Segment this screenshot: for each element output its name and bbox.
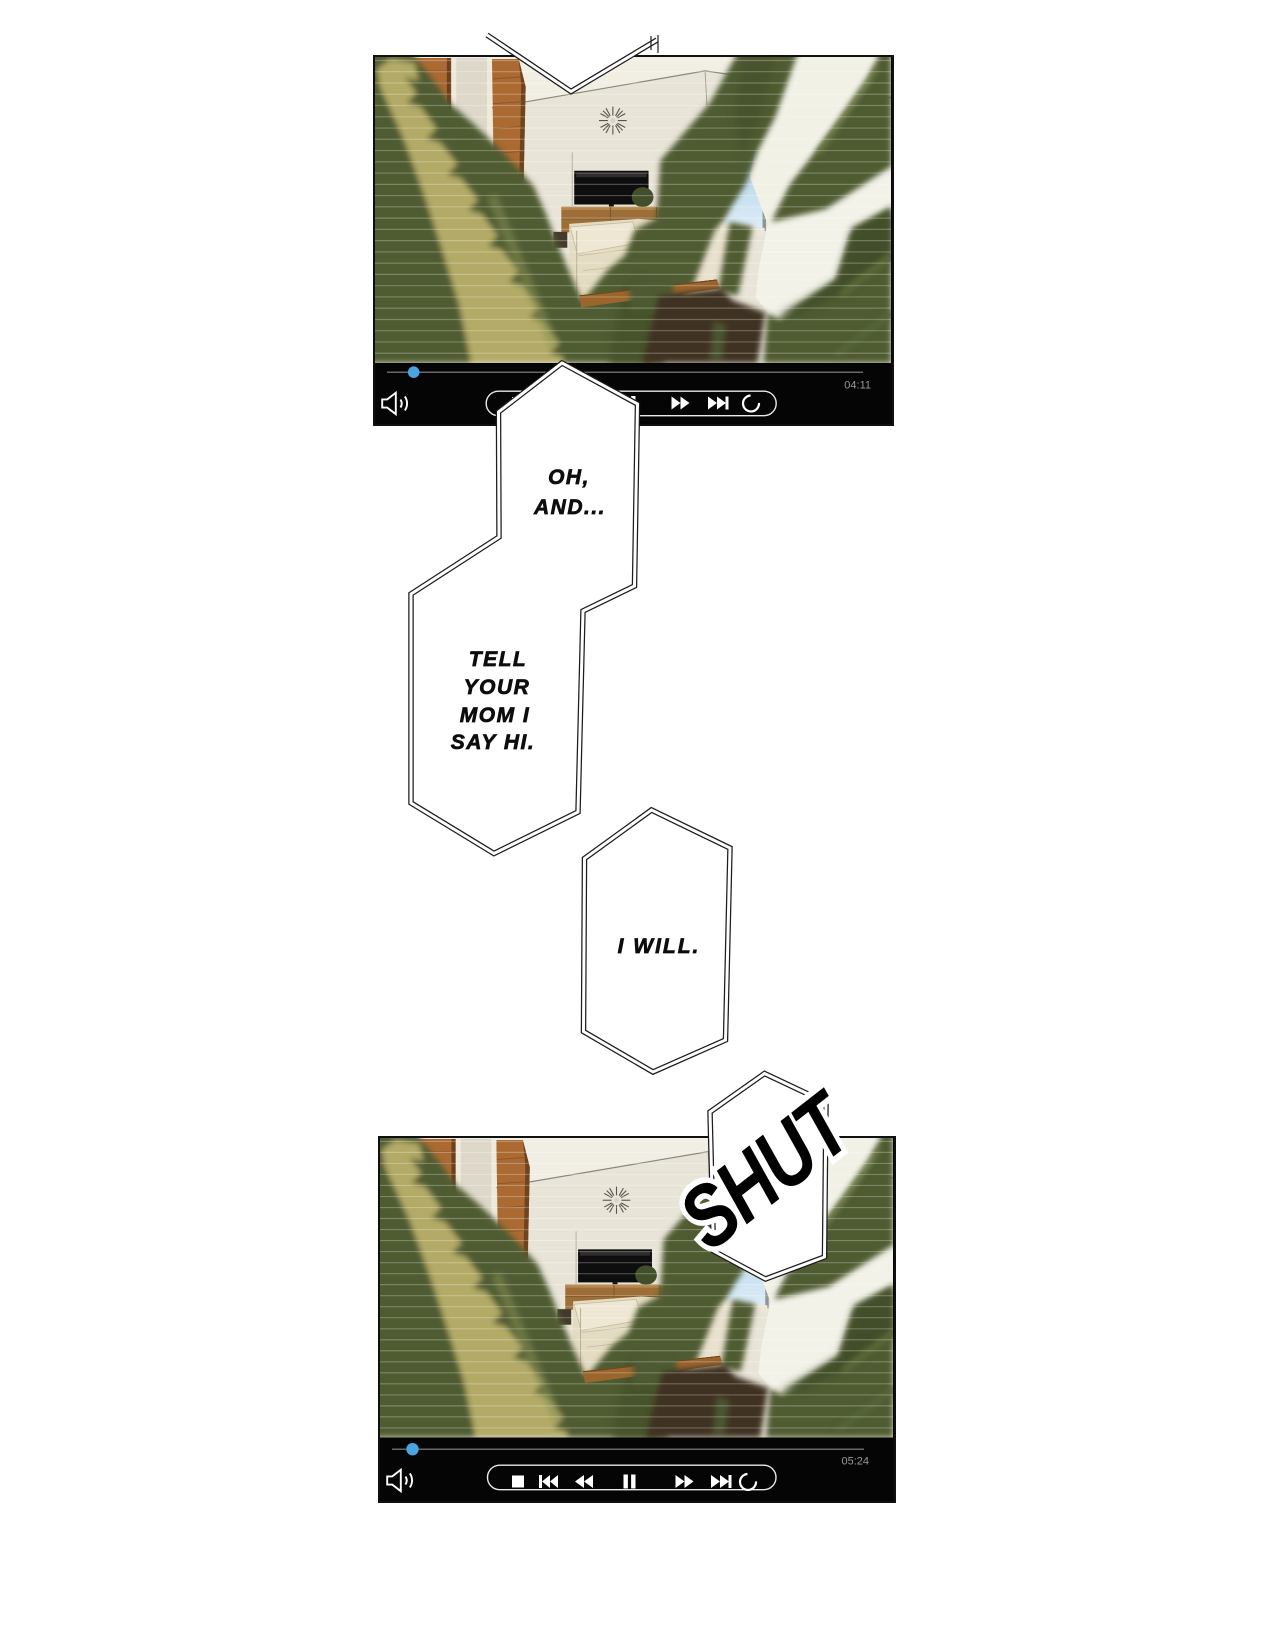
svg-text:I WILL.: I WILL. [618, 935, 701, 958]
svg-text:SAY HI.: SAY HI. [451, 731, 535, 754]
svg-text:AND...: AND... [533, 496, 606, 519]
svg-text:YOUR: YOUR [464, 676, 531, 699]
svg-text:MOM I: MOM I [460, 704, 531, 727]
svg-text:OH,: OH, [548, 466, 590, 489]
svg-text:TELL: TELL [469, 648, 528, 671]
